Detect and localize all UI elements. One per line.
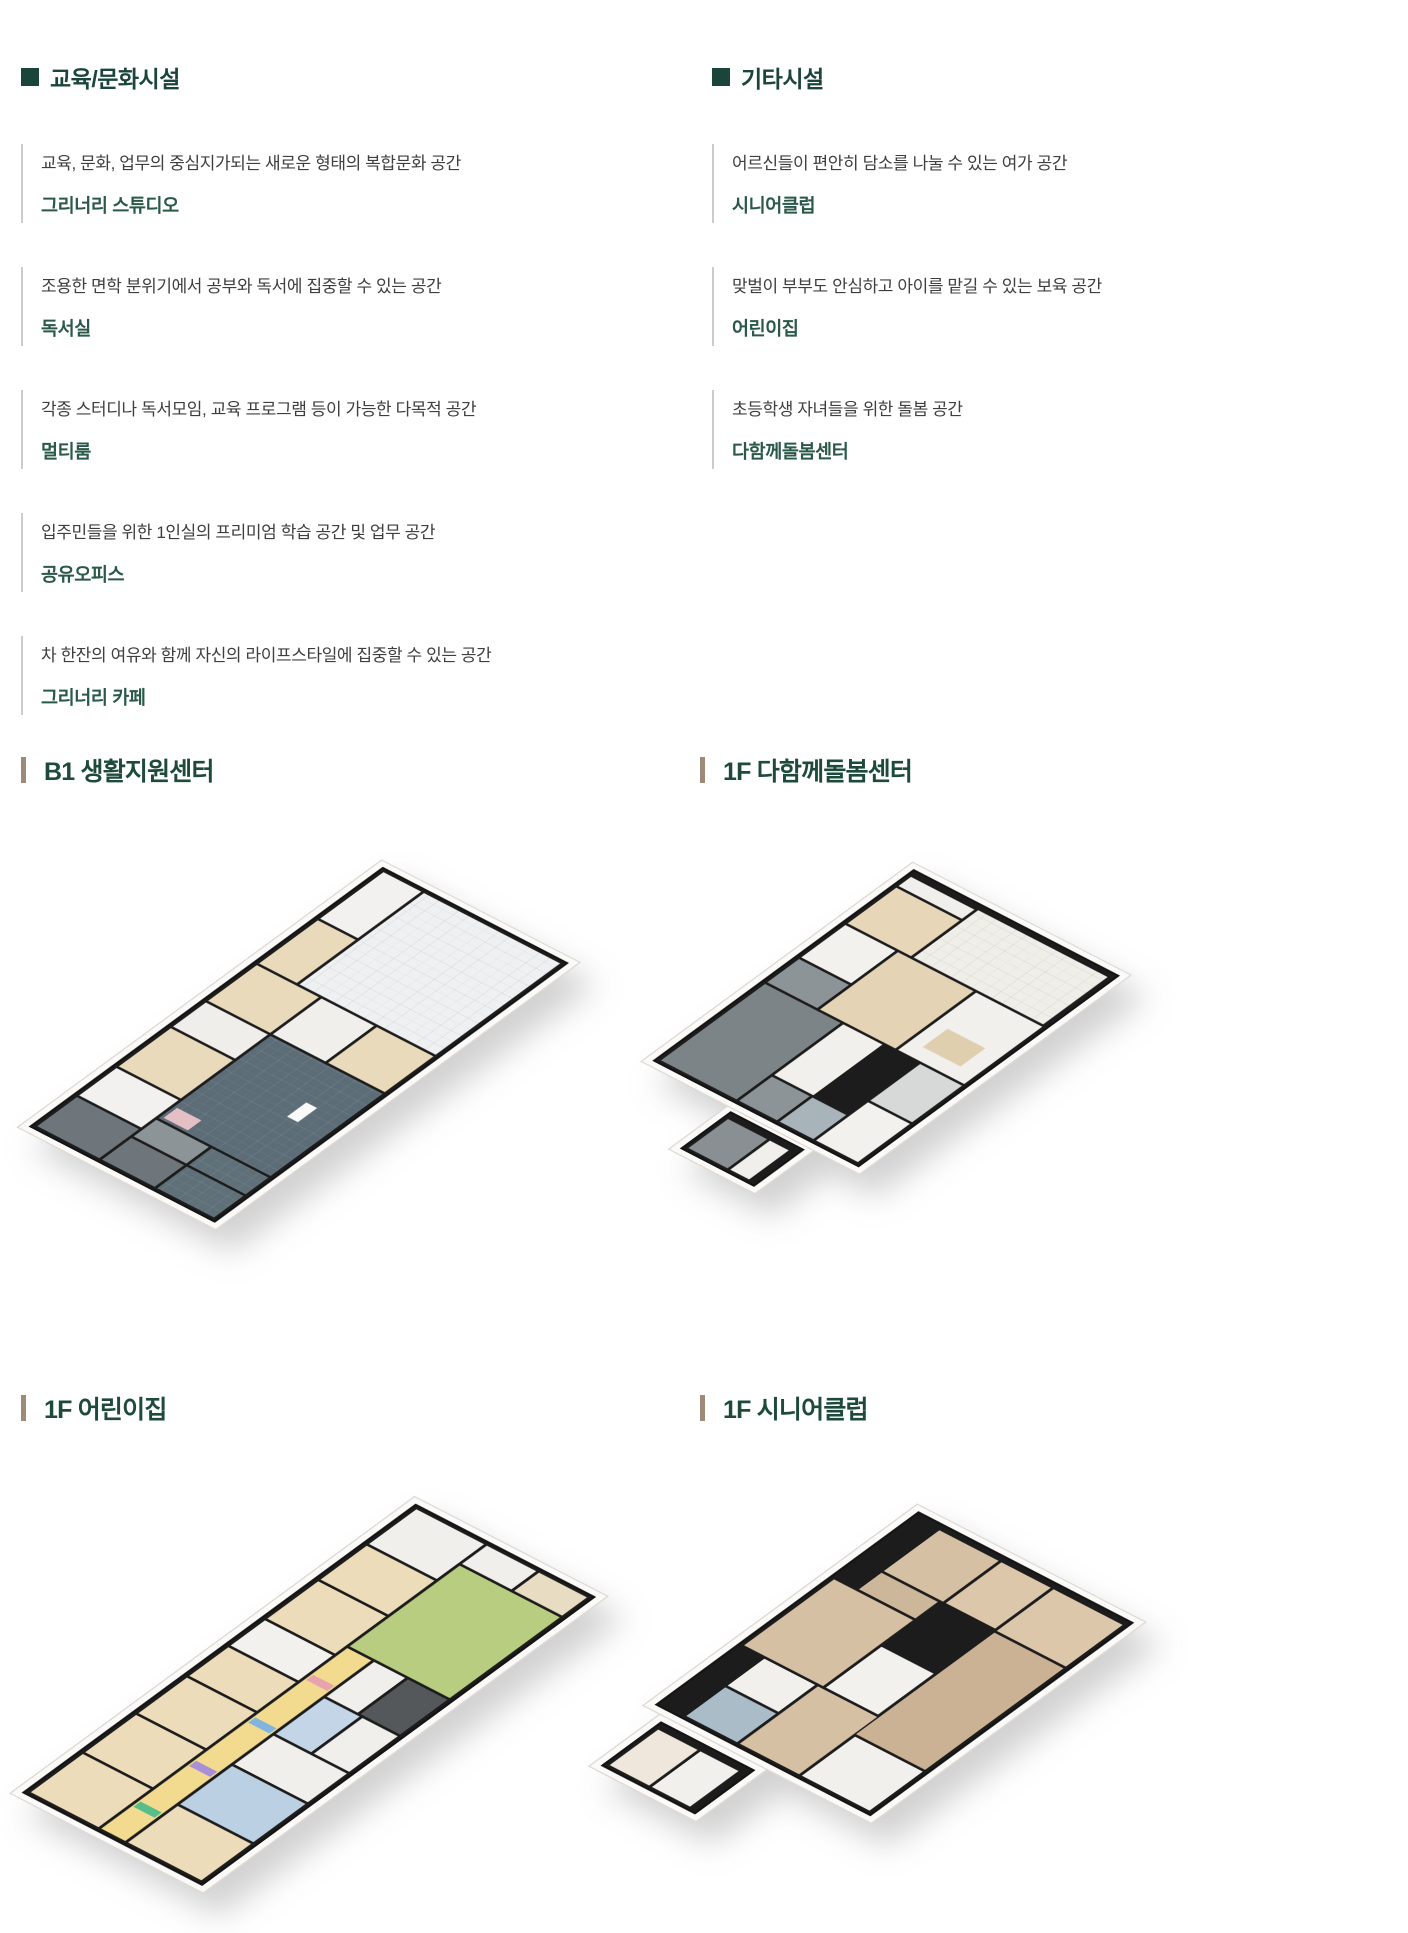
title-bar-icon xyxy=(700,757,705,783)
facility-description: 차 한잔의 여유와 함께 자신의 라이프스타일에 집중할 수 있는 공간 xyxy=(41,641,681,666)
plan-title-daycare: 1F 어린이집 xyxy=(21,1390,167,1426)
section-bullet-square-icon xyxy=(21,68,39,86)
title-bar-icon xyxy=(700,1395,705,1421)
plan-title-text: 1F 다함께돌봄센터 xyxy=(723,752,912,788)
facility-description: 각종 스터디나 독서모임, 교육 프로그램 등이 가능한 다목적 공간 xyxy=(41,395,681,420)
plan-title-care-center: 1F 다함께돌봄센터 xyxy=(700,752,912,788)
plan-title-text: 1F 시니어클럽 xyxy=(723,1390,868,1426)
other-facilities-section: 기타시설 어르신들이 편안히 담소를 나눌 수 있는 여가 공간 시니어클럽 맞… xyxy=(712,60,1352,513)
plan-title-text: 1F 어린이집 xyxy=(44,1390,167,1426)
facility-item-greenery-studio: 교육, 문화, 업무의 중심지가되는 새로운 형태의 복합문화 공간 그리너리 … xyxy=(21,144,681,223)
facility-name: 그리너리 스튜디오 xyxy=(41,192,681,218)
facility-item-greenery-cafe: 차 한잔의 여유와 함께 자신의 라이프스타일에 집중할 수 있는 공간 그리너… xyxy=(21,636,681,715)
facility-name: 공유오피스 xyxy=(41,561,681,587)
section-bullet-square-icon xyxy=(712,68,730,86)
facility-description: 어르신들이 편안히 담소를 나눌 수 있는 여가 공간 xyxy=(732,149,1352,174)
building-slab xyxy=(29,867,569,1223)
facility-name: 그리너리 카페 xyxy=(41,684,681,710)
title-bar-icon xyxy=(21,1395,26,1421)
facility-name: 시니어클럽 xyxy=(732,192,1352,218)
facility-description: 조용한 면학 분위기에서 공부와 독서에 집중할 수 있는 공간 xyxy=(41,272,681,297)
facility-item-reading-room: 조용한 면학 분위기에서 공부와 독서에 집중할 수 있는 공간 독서실 xyxy=(21,267,681,346)
facility-item-daycare: 맞벌이 부부도 안심하고 아이를 맡길 수 있는 보육 공간 어린이집 xyxy=(712,267,1352,346)
facility-item-shared-office: 입주민들을 위한 1인실의 프리미엄 학습 공간 및 업무 공간 공유오피스 xyxy=(21,513,681,592)
floorplan-1f-senior-club xyxy=(590,1470,1120,1910)
floorplan-render xyxy=(22,1506,588,1883)
other-section-heading: 기타시설 xyxy=(712,60,1352,94)
section-title: 기타시설 xyxy=(741,60,824,94)
facility-description: 입주민들을 위한 1인실의 프리미엄 학습 공간 및 업무 공간 xyxy=(41,518,681,543)
facility-name: 독서실 xyxy=(41,315,681,341)
floorplan-render xyxy=(593,872,1112,1209)
facility-brochure-page: 교육/문화시설 교육, 문화, 업무의 중심지가되는 새로운 형태의 복합문화 … xyxy=(0,0,1408,1933)
education-section-heading: 교육/문화시설 xyxy=(21,60,681,94)
facility-name: 멀티룸 xyxy=(41,438,681,464)
floorplan-1f-daycare-center xyxy=(20,1470,590,1920)
facility-item-multi-room: 각종 스터디나 독서모임, 교육 프로그램 등이 가능한 다목적 공간 멀티룸 xyxy=(21,390,681,469)
facility-item-senior-club: 어르신들이 편안히 담소를 나눌 수 있는 여가 공간 시니어클럽 xyxy=(712,144,1352,223)
plan-title-b1-support-center: B1 생활지원센터 xyxy=(21,752,214,788)
plan-title-senior-club: 1F 시니어클럽 xyxy=(700,1390,868,1426)
facility-description: 맞벌이 부부도 안심하고 아이를 맡길 수 있는 보육 공간 xyxy=(732,272,1352,297)
facility-name: 다함께돌봄센터 xyxy=(732,438,1352,464)
title-bar-icon xyxy=(21,757,26,783)
education-culture-section: 교육/문화시설 교육, 문화, 업무의 중심지가되는 새로운 형태의 복합문화 … xyxy=(21,60,681,759)
floorplan-render xyxy=(29,869,562,1220)
facility-name: 어린이집 xyxy=(732,315,1352,341)
floorplan-render xyxy=(584,1514,1127,1866)
floorplan-1f-dahamkke-care-center xyxy=(590,800,1115,1280)
building-slab xyxy=(22,1504,596,1886)
floorplan-b1-living-support-center xyxy=(25,800,565,1290)
facility-description: 초등학생 자녀들을 위한 돌봄 공간 xyxy=(732,395,1352,420)
plan-title-text: B1 생활지원센터 xyxy=(44,752,214,788)
facility-description: 교육, 문화, 업무의 중심지가되는 새로운 형태의 복합문화 공간 xyxy=(41,149,681,174)
section-title: 교육/문화시설 xyxy=(50,60,180,94)
facility-item-care-center: 초등학생 자녀들을 위한 돌봄 공간 다함께돌봄센터 xyxy=(712,390,1352,469)
